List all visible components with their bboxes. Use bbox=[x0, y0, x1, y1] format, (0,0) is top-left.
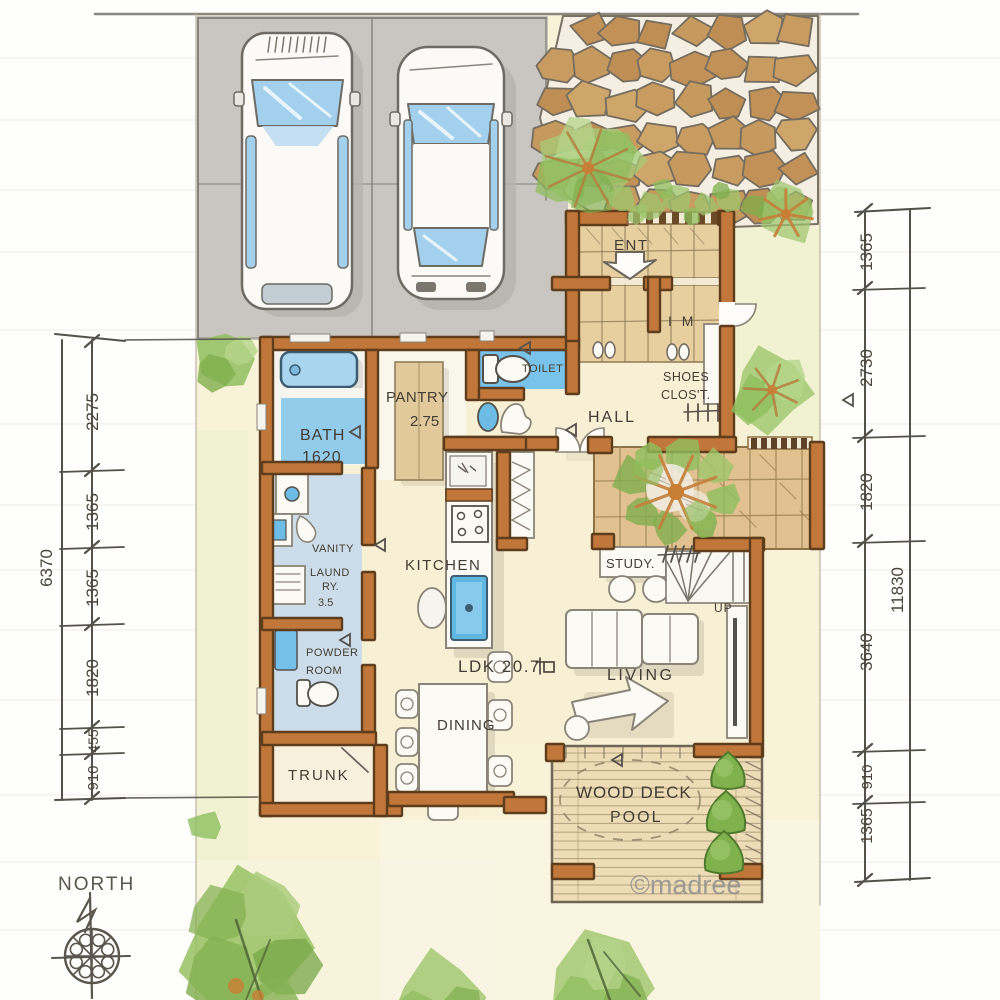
svg-text:1820: 1820 bbox=[83, 659, 102, 697]
svg-text:HALL: HALL bbox=[588, 409, 636, 426]
svg-text:DINING: DINING bbox=[437, 717, 496, 734]
svg-text:TRUNK: TRUNK bbox=[288, 767, 350, 784]
svg-text:STUDY.: STUDY. bbox=[606, 556, 655, 571]
svg-text:TOILET: TOILET bbox=[522, 363, 563, 375]
svg-text:910: 910 bbox=[859, 764, 876, 789]
svg-text:1820: 1820 bbox=[857, 473, 876, 511]
svg-text:ENT: ENT bbox=[614, 237, 649, 254]
svg-text:LIVING: LIVING bbox=[607, 667, 674, 684]
svg-text:3640: 3640 bbox=[857, 633, 876, 671]
svg-text:1365: 1365 bbox=[83, 569, 102, 607]
svg-text:NORTH: NORTH bbox=[58, 874, 135, 895]
svg-text:2275: 2275 bbox=[83, 393, 102, 431]
svg-text:2.75: 2.75 bbox=[410, 413, 439, 430]
svg-text:455: 455 bbox=[85, 729, 101, 753]
svg-text:POOL: POOL bbox=[610, 809, 662, 826]
svg-text:SHOES: SHOES bbox=[663, 370, 709, 384]
svg-text:1365: 1365 bbox=[83, 493, 102, 531]
svg-text:LDK 20.7: LDK 20.7 bbox=[458, 657, 541, 676]
svg-text:2730: 2730 bbox=[857, 349, 876, 387]
svg-text:UP: UP bbox=[714, 601, 733, 615]
svg-text:6370: 6370 bbox=[37, 549, 56, 587]
svg-text:POWDER: POWDER bbox=[306, 647, 359, 659]
svg-text:910: 910 bbox=[85, 765, 102, 790]
svg-text:1620: 1620 bbox=[302, 449, 342, 466]
svg-text:RY.: RY. bbox=[322, 581, 339, 593]
svg-text:CLOS'T.: CLOS'T. bbox=[661, 388, 711, 402]
svg-text:1365: 1365 bbox=[857, 233, 876, 271]
svg-text:WOOD DECK: WOOD DECK bbox=[576, 783, 692, 802]
svg-text:1365: 1365 bbox=[859, 808, 876, 844]
svg-text:BATH: BATH bbox=[300, 427, 345, 444]
svg-text:VANITY: VANITY bbox=[312, 543, 354, 555]
svg-text:LAUND: LAUND bbox=[310, 567, 350, 579]
svg-text:©madree: ©madree bbox=[630, 870, 741, 900]
svg-text:PANTRY: PANTRY bbox=[386, 389, 448, 406]
svg-text:3.5: 3.5 bbox=[318, 597, 333, 609]
svg-text:ROOM: ROOM bbox=[306, 665, 342, 677]
svg-text:11830: 11830 bbox=[888, 567, 907, 613]
svg-text:I M: I M bbox=[668, 313, 696, 329]
svg-text:KITCHEN: KITCHEN bbox=[405, 557, 481, 574]
